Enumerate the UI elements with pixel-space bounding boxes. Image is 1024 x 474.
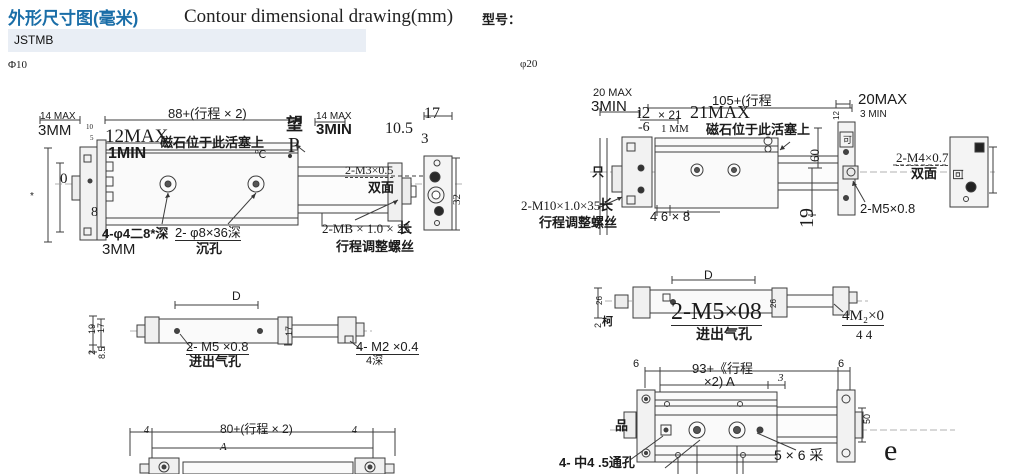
phi20-bot-pin-mark: 品 (615, 419, 628, 432)
phi20-adjust-note2: 行程调整螺丝 (539, 216, 617, 229)
model-value: JSTMB (14, 33, 53, 47)
phi20-adjust-long: 长 (599, 198, 613, 212)
phi10-dim-1min: 1MIN (108, 146, 146, 162)
phi20-zhi-mark: 只 (592, 166, 604, 178)
phi10-adjust-note: 2-MB × 1.0 × 25 (322, 222, 410, 235)
phi10-bot-dim-80: 80+(行程 × 2) (220, 423, 293, 435)
phi10-thread-note: 2-M3×0.5 (345, 164, 393, 178)
phi20-ke-mark: 可 (843, 136, 852, 145)
phi10-wang-mark: 望 (286, 116, 303, 133)
phi20-adjust-note: 2-M10×1.0×35 (521, 199, 600, 212)
page-title-en: Contour dimensional drawing(mm) (184, 6, 453, 28)
phi10-dim-5-small: 5 (90, 135, 94, 142)
phi10-mid-dim-2: 2 (88, 350, 97, 355)
phi20-hui-mark: 回 (954, 169, 965, 180)
phi20-mid-thread-note: 4M₂×0 (842, 309, 884, 326)
phi10-bot-dim-4l: 4 (144, 426, 149, 436)
phi10-star-mark: * (30, 192, 34, 202)
phi20-bot-dim-6l: 6 (633, 359, 639, 370)
phi20-dim-19: 19 (797, 208, 817, 228)
page: 外形尺寸图(毫米) Contour dimensional drawing(mm… (0, 0, 1024, 474)
phi10-dim-3min: 3MIN (316, 122, 352, 137)
phi10-dim-17: 17 (424, 106, 440, 122)
phi20-bot-dim-93b: ×2) A (704, 375, 735, 388)
phi20-dim-stroke: 105+(行程 (712, 94, 772, 107)
phi20-bot-dim-6r: 6 (838, 359, 844, 370)
phi10-mid-dim-17l: 17 (97, 323, 106, 333)
phi20-mid-ke2-mark: 柯 (602, 317, 613, 328)
phi20-bot-dim-50: 50 (863, 414, 872, 424)
phi10-dim-8: 8 (91, 206, 98, 220)
phi10-dim-12max: 12MAX (105, 127, 168, 146)
phi20-section-label: φ20 (520, 59, 537, 70)
phi20-bot-holes-note: 4- 中4 .5通孔 (559, 456, 635, 469)
phi20-mid-dim-26m: 26 (770, 299, 778, 308)
phi20-dim-x21: × 21 (658, 109, 682, 121)
phi20-thread-m5: 2-M5×0.8 (860, 202, 915, 215)
phi20-bot-e-mark: e (884, 436, 897, 466)
phi20-dim-12: 12 (833, 111, 841, 120)
phi10-mid-thread-note2: 4深 (366, 356, 383, 367)
phi20-bot-note-5x6: 5 × 6 采 (774, 448, 823, 462)
phi10-degc-mark: ℃ (254, 150, 266, 161)
phi20-dim-m6: -6 (638, 121, 650, 135)
phi10-mid-dim-8-5: 8.5 (98, 346, 107, 359)
phi20-magnet-note: 磁石位于此活塞上 (706, 123, 810, 136)
phi20-thread-note2: 双面 (911, 167, 937, 180)
phi10-adjust-note2: 行程调整螺丝 (336, 240, 414, 253)
model-strip: JSTMB (8, 29, 366, 52)
phi10-dim-3: 3 (421, 132, 429, 147)
phi20-dim-3min-right: 3 MIN (860, 110, 887, 120)
phi20-dim-60: 60 (808, 149, 821, 162)
phi20-bot-dim-3: 3 (778, 373, 784, 384)
page-title-cn: 外形尺寸图(毫米) (8, 4, 138, 29)
phi10-mid-port-note: 2- M5 ×0.8 (186, 340, 249, 355)
phi20-dim-20max-right: 20MAX (858, 92, 907, 107)
phi10-section-label: Φ10 (8, 60, 27, 71)
phi10-dim-10-5: 10.5 (385, 121, 413, 137)
phi10-bot-dim-a: A (220, 442, 227, 453)
phi10-mid-thread-note: 4- M2 ×0.4 (356, 340, 419, 355)
phi10-thread-note2: 双面 (368, 181, 394, 194)
phi10-dim-3mm: 3MM (38, 123, 71, 138)
phi10-bot-dim-4r: 4 (352, 426, 357, 436)
phi10-dim-14max: 14 MAX (40, 112, 76, 122)
phi20-dim-468: 4 6 × 8 (650, 210, 690, 223)
phi20-dim-1mm: 1 MM (661, 124, 689, 135)
phi20-thread-note: 2-M4×0.7 (896, 151, 948, 166)
phi10-p-mark: P (288, 135, 300, 156)
phi10-holes-note2: 3MM (102, 242, 135, 257)
phi10-mid-port-note2: 进出气孔 (189, 355, 241, 368)
phi10-dim-10-small: 10 (86, 124, 93, 131)
phi20-mid-thread-note2: 4 4 (856, 328, 872, 341)
phi10-dim-stroke: 88+(行程 × 2) (168, 107, 247, 120)
phi10-mid-dim-17m: 17 (285, 326, 294, 336)
phi10-dim-0: 0 (60, 172, 68, 187)
phi20-dim-i2: i2 (637, 104, 650, 121)
phi10-dim-32: 32 (452, 194, 463, 205)
model-number-label: 型号： (482, 9, 521, 28)
phi10-mid-dim-d: D (232, 290, 241, 302)
phi20-mid-port-note2: 进出气孔 (696, 327, 752, 341)
phi20-dim-3min: 3MIN (591, 99, 627, 114)
phi10-sink-note2: 沉孔 (196, 242, 222, 255)
phi10-magnet-note: 磁石位于此活塞上 (160, 136, 264, 149)
phi10-sink-note: 2- φ8×36深 (175, 226, 241, 241)
phi10-adjust-long: 长 (398, 221, 412, 235)
phi20-mid-dim-d: D (704, 269, 713, 281)
phi20-mid-port-note: 2-M5×08 (671, 300, 762, 326)
phi10-holes-note: 4-φ4二8*深 (102, 227, 168, 240)
phi20-mid-dim-26l: 26 (596, 296, 604, 305)
